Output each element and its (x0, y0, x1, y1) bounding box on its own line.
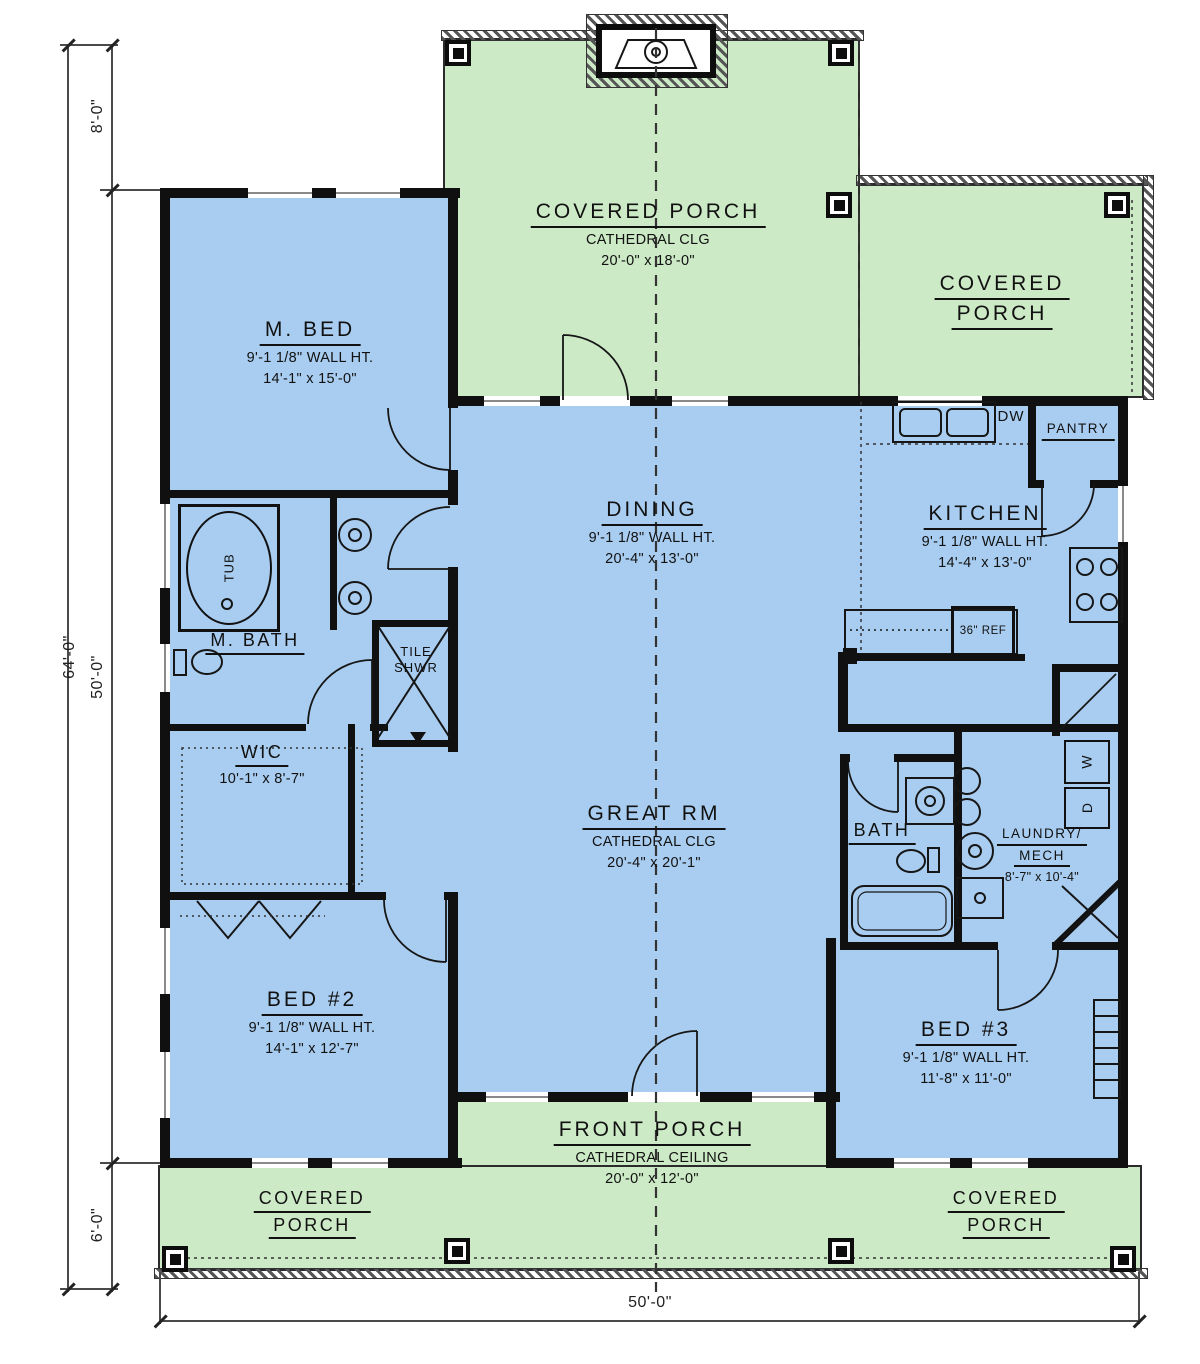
room-label-front-porch: FRONT PORCH CATHEDRAL CEILING 20'-0" x 1… (554, 1118, 751, 1188)
porch-post (162, 1246, 188, 1272)
room-label-bath: BATH (849, 820, 916, 845)
porch-post (445, 40, 471, 66)
dishwasher-label: DW (998, 408, 1025, 426)
laundry-fixtures (954, 768, 1003, 918)
porch-post (828, 40, 854, 66)
room-label-wic: WIC 10'-1" x 8'-7" (219, 742, 304, 788)
room-label-covered-porch-top: COVERED PORCH CATHEDRAL CLG 20'-0" x 18'… (531, 200, 766, 270)
tub-label: TUB (221, 554, 237, 583)
room-label-m-bed: M. BED 9'-1 1/8" WALL HT. 14'-1" x 15'-0… (247, 318, 374, 388)
room-label-covered-porch-br: COVERED PORCH (948, 1188, 1065, 1241)
floor-plan: TUB 36" REF W D (0, 0, 1200, 1364)
door-swings (308, 335, 1116, 1096)
tub-oval: TUB (186, 511, 272, 625)
room-label-laundry: LAUNDRY/ MECH 8'-7" x 10'-4" (997, 826, 1087, 886)
room-label-covered-porch-right: COVERED PORCH (935, 272, 1070, 332)
porch-post (1110, 1246, 1136, 1272)
room-label-pantry: PANTRY (1042, 420, 1115, 441)
room-label-bed2: BED #2 9'-1 1/8" WALL HT. 14'-1" x 12'-7… (249, 988, 376, 1058)
washer-label: W (1079, 755, 1095, 768)
dryer-box: D (1064, 787, 1110, 829)
room-label-dining: DINING 9'-1 1/8" WALL HT. 20'-4" x 13'-0… (589, 498, 716, 568)
refrigerator-box: 36" REF (951, 606, 1015, 656)
bath-fixtures (174, 519, 954, 936)
room-label-kitchen: KITCHEN 9'-1 1/8" WALL HT. 14'-4" x 13'-… (922, 502, 1049, 572)
room-label-m-bath: M. BATH (205, 630, 304, 655)
corner-closet (1056, 876, 1126, 944)
room-label-great-rm: GREAT RM CATHEDRAL CLG 20'-4" x 20'-1" (583, 802, 726, 872)
refrigerator-label: 36" REF (960, 625, 1007, 637)
room-label-covered-porch-bl: COVERED PORCH (254, 1188, 371, 1241)
dryer-label: D (1079, 803, 1095, 813)
washer-box: W (1064, 740, 1110, 784)
porch-post (1104, 192, 1130, 218)
porch-post (828, 1238, 854, 1264)
room-title: COVERED PORCH (531, 200, 766, 228)
porch-post (826, 192, 852, 218)
porch-post (444, 1238, 470, 1264)
shower-label: TILE SHWR (394, 644, 438, 675)
room-label-bed3: BED #3 9'-1 1/8" WALL HT. 11'-8" x 11'-0… (903, 1018, 1030, 1088)
